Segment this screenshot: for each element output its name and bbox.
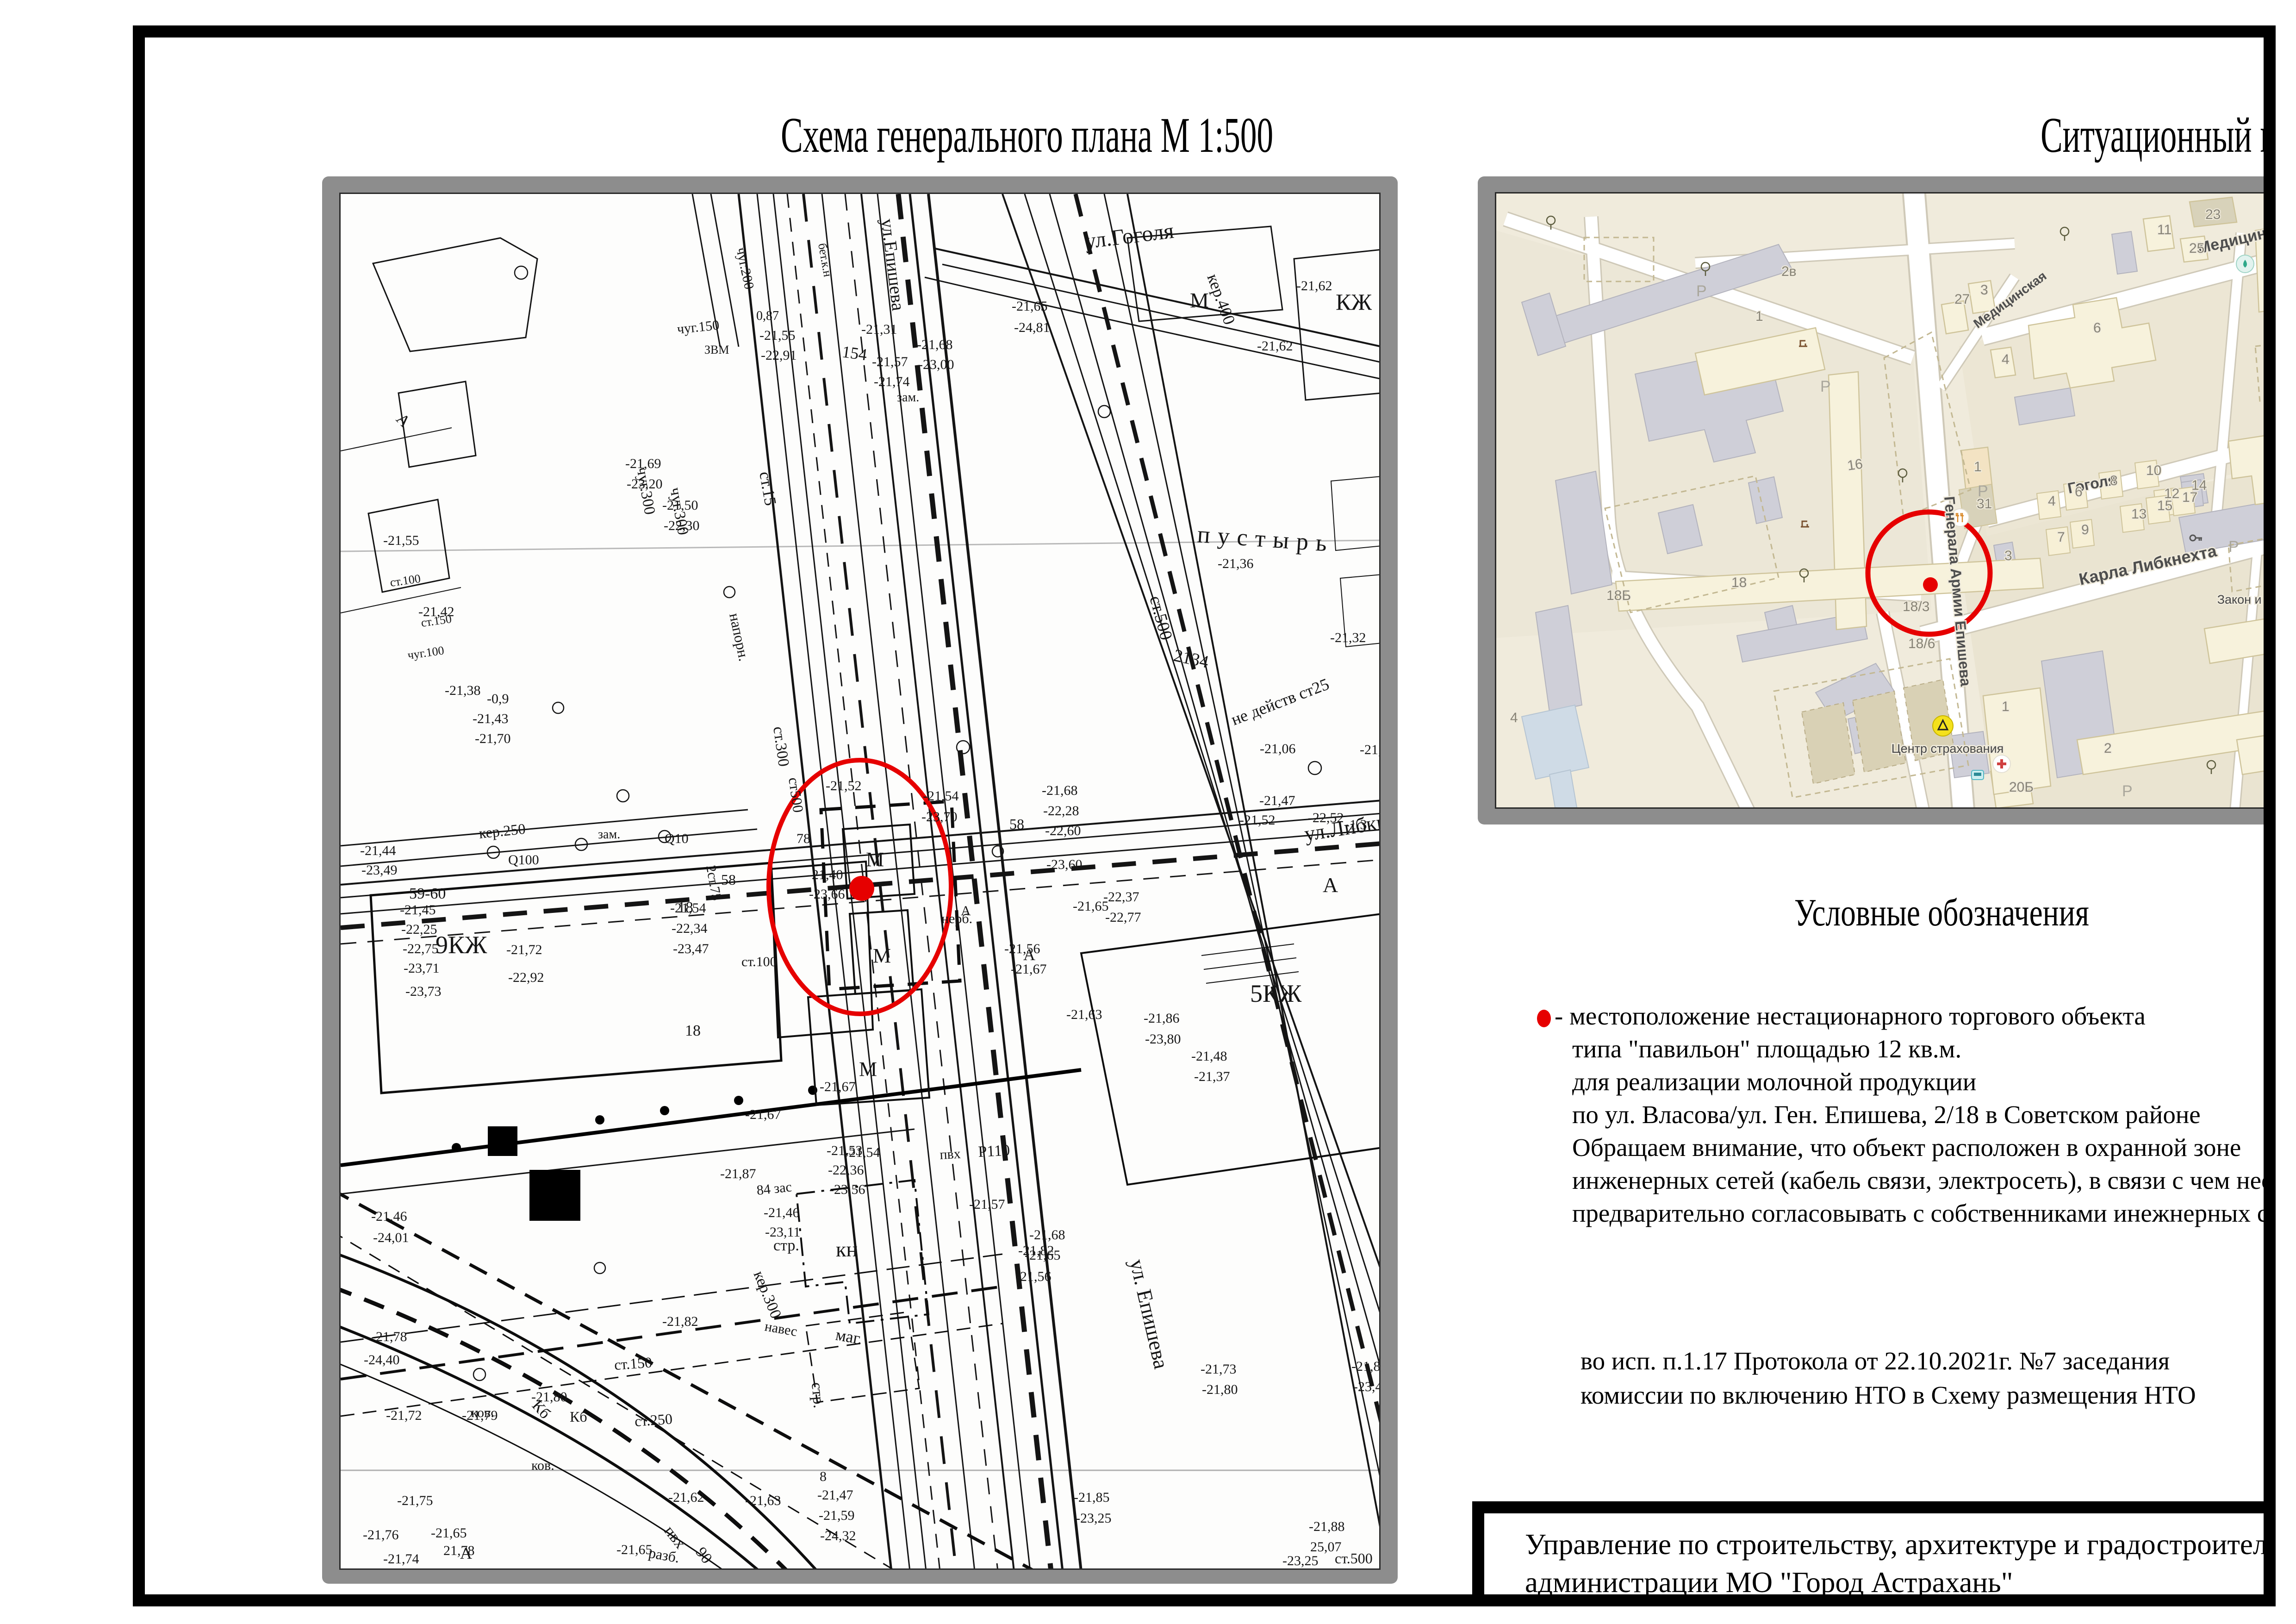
map-label: ст.15 (756, 470, 780, 507)
elevation-label: -21,82 (662, 1314, 698, 1329)
insurance-icon (1933, 716, 1953, 736)
stamp-fields: от № Лист Листов (1525, 1601, 2276, 1606)
map-label: кер.250 (478, 820, 526, 842)
legend-block: - местоположение нестационарного торгово… (1537, 999, 2276, 1230)
map-label: кер.300 (750, 1268, 784, 1321)
map-label: ул.Епишева (877, 218, 909, 312)
building-number: 18/3 (1903, 599, 1929, 614)
elevation-label: -23,47 (673, 941, 709, 956)
map-label: ст.300 (770, 725, 792, 768)
building-number: 4 (2048, 493, 2056, 509)
building-number: 9 (2081, 522, 2089, 537)
elevation-label: -21,87 (720, 1166, 756, 1181)
map-label: А (1323, 873, 1338, 897)
page-border: Схема генерального плана М 1:500 Ситуаци… (133, 25, 2276, 1606)
map-label: М (1190, 288, 1209, 312)
elevation-label: -21,62 (668, 1490, 704, 1505)
elevation-label: 9КЖ (436, 931, 487, 959)
elevation-label: -1,3 (1345, 817, 1367, 832)
building-number: 1 (2002, 699, 2010, 714)
poi-label: Центр страхования (1892, 742, 2004, 756)
elevation-label: -21,72 (386, 1408, 422, 1423)
elevation-label: -21,79 (462, 1408, 498, 1423)
elevation-label: 5КЖ (1250, 980, 1302, 1007)
elevation-label: -22,75 (403, 941, 439, 956)
elevation-label: -21,67 (1011, 962, 1047, 977)
location-marker-legend-icon (1537, 1010, 1551, 1027)
water-icon (2236, 255, 2254, 273)
building-number: 3 (1980, 282, 1988, 298)
map-label: ул. Епишева (1125, 1257, 1173, 1371)
bus-icon (1972, 770, 1984, 780)
stamp-from-label: от (1525, 1604, 1552, 1606)
elevation-label: -21,50 (662, 498, 698, 513)
building-number: 10 (2146, 463, 2161, 478)
elevation-label: -21,42 (418, 604, 454, 619)
protocol-note: во исп. п.1.17 Протокола от 22.10.2021г.… (1580, 1344, 2276, 1412)
elevation-label: -21,36 (1218, 556, 1254, 571)
elevation-label: 58 (1009, 816, 1024, 832)
elevation-label: -23,46 (1353, 1379, 1381, 1394)
elevation-label: -21,68 (917, 337, 953, 352)
map-label: ст.250 (634, 1410, 673, 1430)
location-marker-dot (1923, 577, 1938, 592)
map-label: Р110 (977, 1142, 1010, 1161)
building-number: 16 (1846, 456, 1864, 474)
map-label: кн (836, 1237, 858, 1261)
map-label: ст.150 (614, 1354, 653, 1373)
elevation-label: 21,78 (443, 1543, 475, 1558)
elevation-label: -21,82 (1018, 1243, 1054, 1258)
building-number: 1 (1755, 309, 1763, 324)
map-label: стр. (808, 1381, 828, 1409)
building-number: 1 (1974, 459, 1982, 475)
location-marker-dot (849, 876, 874, 901)
elevation-label: -21,67 (745, 1107, 781, 1122)
elevation-label: -23,00 (918, 357, 954, 372)
map-label: нерб. (941, 911, 972, 926)
map-label: М (859, 1058, 877, 1081)
elevation-label: -21,38 (445, 683, 481, 698)
elevation-label: -21,72 (506, 942, 542, 957)
map-label: Кб (570, 1408, 587, 1425)
map-label: чуг.100 (407, 643, 445, 662)
elevation-label: 84 зас (756, 1179, 792, 1198)
elevation-label: -21,74 (383, 1551, 419, 1567)
map-label: ст.500 (1145, 593, 1176, 642)
elevation-label: 78 (796, 831, 810, 846)
stamp-sheet-label: Лист (1970, 1604, 2031, 1606)
elevation-label: -23,56 (829, 1182, 865, 1197)
elevation-label: -21,52 (826, 778, 862, 793)
elevation-label: -21,55 (759, 328, 796, 343)
elevation-label: 0,87 (756, 309, 779, 323)
legend-line: Обращаем внимание, что объект расположен… (1537, 1131, 2276, 1164)
stamp-sheets-label: Листов (2097, 1604, 2185, 1606)
elevation-label: -22,60 (1045, 823, 1081, 838)
elevation-label: -21,80 (1202, 1382, 1238, 1397)
elevation-label: -21,67 (820, 1079, 856, 1094)
map-label: пвх (940, 1146, 961, 1162)
building-number: 11 (2157, 222, 2172, 237)
stamp-number-label: № (1733, 1604, 1761, 1606)
elevation-label: -21,80 (531, 1389, 567, 1405)
genplan-map: ул.Гоголяул.Епишеваул.Либкнехтаул. Епише… (339, 193, 1381, 1570)
map-label: Q10 (665, 831, 689, 846)
elevation-label: -23,80 (1145, 1031, 1181, 1047)
building-number: 2в (1781, 264, 1797, 279)
map-label: ков. (531, 1458, 554, 1473)
map-label: ст.100 (389, 572, 422, 589)
elevation-label: -21,65 (431, 1525, 467, 1541)
elevation-label: -21,86 (1144, 1011, 1180, 1026)
elevation-label: -21,56 (1004, 941, 1040, 956)
elevation-label: -21,62 (1257, 338, 1293, 354)
elevation-label: -22,77 (1105, 910, 1141, 925)
map-label: пустырь (1196, 521, 1335, 557)
elevation-label: -21,59 (819, 1508, 855, 1523)
elevation-label: -21,78 (371, 1329, 407, 1344)
elevation-label: -23,66 (809, 887, 845, 902)
map-label: ЗВМ (704, 343, 729, 356)
sitplan-title: Ситуационный план (1941, 107, 2276, 164)
sitplan-panel: МедицинскаяМедицинскаяГоголяКарла Либкне… (1478, 176, 2276, 824)
stamp-number-value-blank (1768, 1604, 1963, 1606)
elevation-label: -21,65 (1012, 299, 1048, 314)
genplan-drawing: ул.Гоголяул.Епишеваул.Либкнехтаул. Епише… (341, 194, 1381, 1570)
protocol-line: комиссии по включению НТО в Схему размещ… (1580, 1378, 2276, 1412)
elevation-label: -23,71 (404, 961, 440, 976)
parking-icon: P (1696, 282, 1707, 300)
parking-icon: P (2122, 782, 2133, 800)
elevation-label: -21,44 (360, 843, 396, 858)
elevation-label: -21,55 (383, 533, 419, 548)
elevation-label: -22,52 (1308, 810, 1344, 825)
building-number: 13 (2131, 506, 2147, 522)
elevation-label: 2134 (1172, 646, 1210, 672)
stamp-org-line1: Управление по строительству, архитектуре… (1525, 1525, 2276, 1563)
building-number: 25 (2189, 241, 2204, 256)
poi-label: Закон и недвижимость (2217, 593, 2276, 606)
elevation-label: -23,25 (1076, 1511, 1112, 1526)
building-number: 4 (2002, 352, 2010, 367)
legend-line: для реализации молочной продукции (1537, 1065, 2276, 1098)
map-label: чуг.200 (733, 246, 757, 291)
elevation-label: -21,57 (872, 354, 908, 369)
building-number: 6 (2075, 484, 2083, 500)
elevation-label: -21,45 (400, 902, 436, 918)
elevation-label: -21,69 (625, 456, 661, 471)
elevation-label: -21,32 (1330, 630, 1366, 645)
map-label: ул.Гоголя (1083, 219, 1175, 254)
elevation-label: -24,81 (1014, 320, 1050, 335)
elevation-label: -23,20 (627, 476, 663, 492)
elevation-label: -23,73 (405, 984, 442, 999)
legend-line: по ул. Власова/ул. Ген. Епишева, 2/18 в … (1537, 1098, 2276, 1131)
curved-road-bottomleft (341, 1189, 1035, 1570)
map-label: КЖ (1336, 289, 1372, 315)
elevation-label: -22,91 (761, 348, 797, 363)
building-number: 23 (2205, 207, 2221, 222)
building-number: 4 (1510, 710, 1518, 725)
building-number: 18/6 (1908, 636, 1935, 651)
map-label: зам. (897, 390, 919, 405)
elevation-label: -24,40 (364, 1352, 400, 1368)
elevation-label: 59-60 (409, 885, 446, 902)
building-number: 3 (2004, 548, 2012, 563)
elevation-label: -21,47 (817, 1487, 853, 1503)
map-label: М (873, 944, 891, 967)
parking-icon: P (1978, 482, 1988, 500)
map-label: маг. (834, 1325, 864, 1348)
elevation-label: 8 (820, 1469, 827, 1484)
map-label: навес (764, 1318, 798, 1339)
elevation-label: -21,06 (1260, 741, 1296, 756)
stamp-sheets-value-blank (2193, 1604, 2253, 1606)
elevation-label: -21,75 (397, 1493, 433, 1508)
elevation-label: -21,53 (827, 1143, 863, 1158)
map-label: не действ ст25 (1229, 675, 1332, 729)
building-number: 20Б (2009, 780, 2034, 795)
elevation-label: 90 (692, 1544, 716, 1567)
genplan-title: Схема генерального плана М 1:500 (654, 107, 1307, 164)
building-number: 18 (1731, 575, 1747, 590)
building-number: 27 (1954, 292, 1970, 307)
elevation-label: -22,34 (672, 921, 708, 936)
elevation-label: -21,70 (475, 731, 511, 746)
elevation-label: 18 (685, 1022, 701, 1039)
map-label: бет.к.н (815, 242, 834, 278)
stamp-box: Управление по строительству, архитектуре… (1472, 1501, 2276, 1606)
map-label: ст.100 (741, 954, 777, 969)
elevation-label: -21,46 (371, 1209, 407, 1224)
sitplan-drawing: МедицинскаяМедицинскаяГоголяКарла Либкне… (1496, 194, 2276, 809)
building-number: 6 (2093, 320, 2101, 336)
map-label: чуг.150 (676, 318, 720, 337)
legend-line: предварительно согласовывать с собственн… (1537, 1197, 2276, 1230)
elevation-label: -21,63 (745, 1493, 781, 1508)
stamp-org-line2: администрации МО "Город Астрахань" (1525, 1563, 2276, 1601)
elevation-label: -23,11 (765, 1224, 800, 1240)
legend-heading: Условные обозначения (1478, 890, 2276, 935)
elevation-label: -0,9 (487, 691, 509, 706)
elevation-label: -21,62 (1296, 278, 1332, 294)
elevation-label: -21,57 (969, 1197, 1005, 1212)
elevation-label: -21,37 (1194, 1069, 1230, 1084)
elevation-label: -21,85 (1074, 1490, 1110, 1505)
elevation-label: -22,36 (828, 1162, 864, 1178)
elevation-label: -23,49 (361, 862, 398, 878)
elevation-label: -21,68 (1029, 1227, 1065, 1243)
genplan-panel: ул.Гоголяул.Епишеваул.Либкнехтаул. Епише… (322, 176, 1398, 1584)
elevation-label: -21,40 (807, 867, 843, 882)
elevation-label: -23,25 (1282, 1553, 1319, 1568)
elevation-label: -21,54 (670, 900, 706, 916)
map-label: кер.400 (1203, 271, 1238, 327)
elevation-label: -23,60 (1046, 857, 1083, 872)
elevation-label: -22,37 (1103, 889, 1139, 905)
elevation-label: -24,32 (820, 1528, 856, 1543)
map-label: напорн. (726, 612, 753, 662)
elevation-label: -21,31 (861, 322, 897, 337)
map-label: ст.500 (1335, 1550, 1373, 1567)
building-number: 18Б (1606, 588, 1631, 603)
legend-marker-dash: - (1555, 1002, 1569, 1030)
elevation-label: -21,47 (1259, 793, 1295, 808)
elevation-label: 58 (721, 871, 736, 888)
elevation-label: 154 (841, 342, 868, 364)
elevation-label: -21,46 (764, 1205, 800, 1220)
street-gogolya-band (925, 249, 1381, 379)
legend-line: инженерных сетей (кабель связи, электрос… (1537, 1164, 2276, 1197)
parking-icon: P (1820, 378, 1831, 395)
elevation-label: -21,54 (923, 788, 959, 804)
elevation-label: -22,25 (401, 922, 437, 937)
medical-icon (1993, 755, 2010, 773)
elevation-label: -22,30 (664, 518, 700, 533)
elevation-label: -21,88 (1309, 1519, 1345, 1534)
elevation-label: -21,65 (616, 1542, 653, 1557)
elevation-label: -22,92 (508, 970, 544, 985)
elevation-label: -21,56 (1015, 1269, 1052, 1284)
elevation-label: -21,86 (1351, 1359, 1381, 1374)
building-number: 7 (2057, 530, 2065, 545)
legend-line: - местоположение нестационарного торгово… (1537, 999, 2276, 1032)
map-label: зам. (598, 827, 620, 842)
elevation-label: -21,76 (363, 1527, 399, 1543)
sitplan-map: МедицинскаяМедицинскаяГоголяКарла Либкне… (1495, 192, 2276, 809)
elevation-label: -21,74 (874, 374, 910, 389)
building-number: 15 (2157, 498, 2172, 513)
legend-line: типа "павильон" площадью 12 кв.м. (1537, 1032, 2276, 1065)
document-page: Схема генерального плана М 1:500 Ситуаци… (0, 0, 2296, 1624)
elevation-label: -22,28 (1043, 803, 1079, 818)
elevation-label: -21,43 (473, 711, 509, 726)
building-number: 17 (2182, 490, 2197, 505)
stamp-from-value-blank (1559, 1604, 1726, 1606)
map-label: М (866, 848, 884, 871)
building-number: 8 (2110, 473, 2118, 488)
elevation-label: -24,01 (373, 1230, 409, 1245)
elevation-label: -21,48 (1360, 742, 1381, 757)
elevation-label: -21,48 (1191, 1049, 1227, 1064)
elevation-label: -21,73 (1201, 1362, 1237, 1377)
map-label: А (392, 409, 414, 431)
protocol-line: во исп. п.1.17 Протокола от 22.10.2021г.… (1580, 1344, 2276, 1378)
building-number: 2 (2104, 741, 2112, 756)
parking-icon: P (2228, 538, 2239, 556)
building-5kzh (1081, 914, 1381, 1185)
elevation-label: -21,63 (1066, 1007, 1102, 1022)
map-label: Q100 (508, 852, 539, 868)
realty-icon (2273, 568, 2276, 588)
elevation-label: -23,70 (921, 809, 958, 824)
stamp-sheet-value-blank (2038, 1604, 2089, 1606)
elevation-label: -21,52 (1239, 812, 1276, 828)
elevation-label: -21,68 (1042, 783, 1078, 798)
